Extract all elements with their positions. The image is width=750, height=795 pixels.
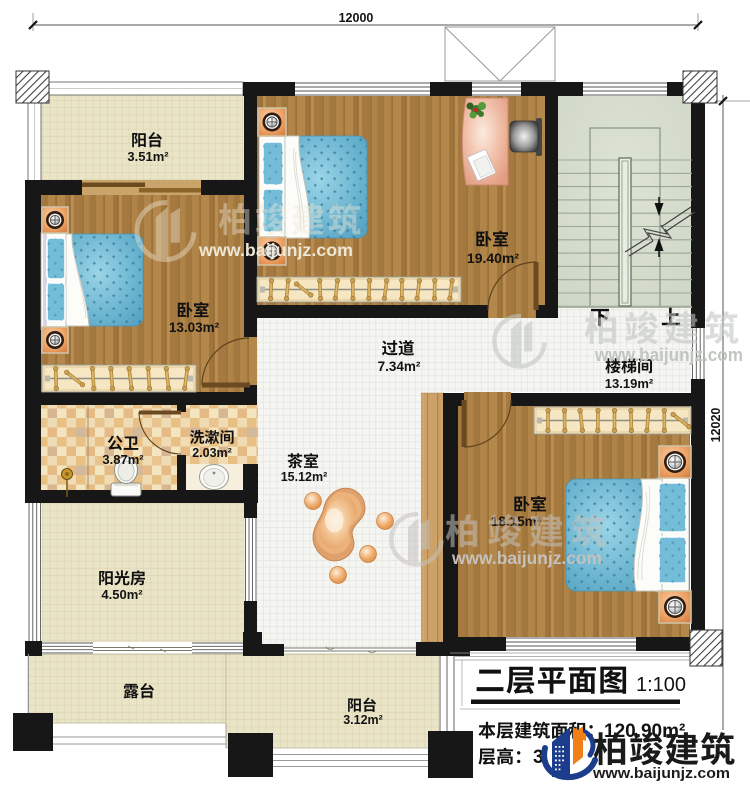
svg-text:3.51m²: 3.51m²: [127, 149, 169, 164]
svg-text:13.03m²: 13.03m²: [169, 320, 220, 335]
svg-text:www.baijunjz.com: www.baijunjz.com: [592, 766, 730, 782]
svg-text:7.34m²: 7.34m²: [378, 359, 421, 374]
svg-text:2.03m²: 2.03m²: [192, 446, 232, 460]
svg-text:www.baijunjz.com: www.baijunjz.com: [198, 240, 353, 260]
svg-text:3.12m²: 3.12m²: [343, 713, 383, 727]
svg-text:19.40m²: 19.40m²: [467, 250, 519, 266]
svg-text:4.50m²: 4.50m²: [101, 587, 143, 602]
svg-text:15.12m²: 15.12m²: [281, 470, 328, 484]
svg-text:www.baijunjz.com: www.baijunjz.com: [451, 548, 602, 568]
svg-text:13.19m²: 13.19m²: [605, 376, 654, 391]
svg-text:3.87m²: 3.87m²: [102, 452, 144, 467]
svg-text:12000: 12000: [339, 11, 374, 25]
svg-text:1:100: 1:100: [636, 674, 686, 696]
svg-text:12020: 12020: [709, 408, 723, 443]
svg-text:www.baijunjz.com: www.baijunjz.com: [594, 345, 743, 365]
